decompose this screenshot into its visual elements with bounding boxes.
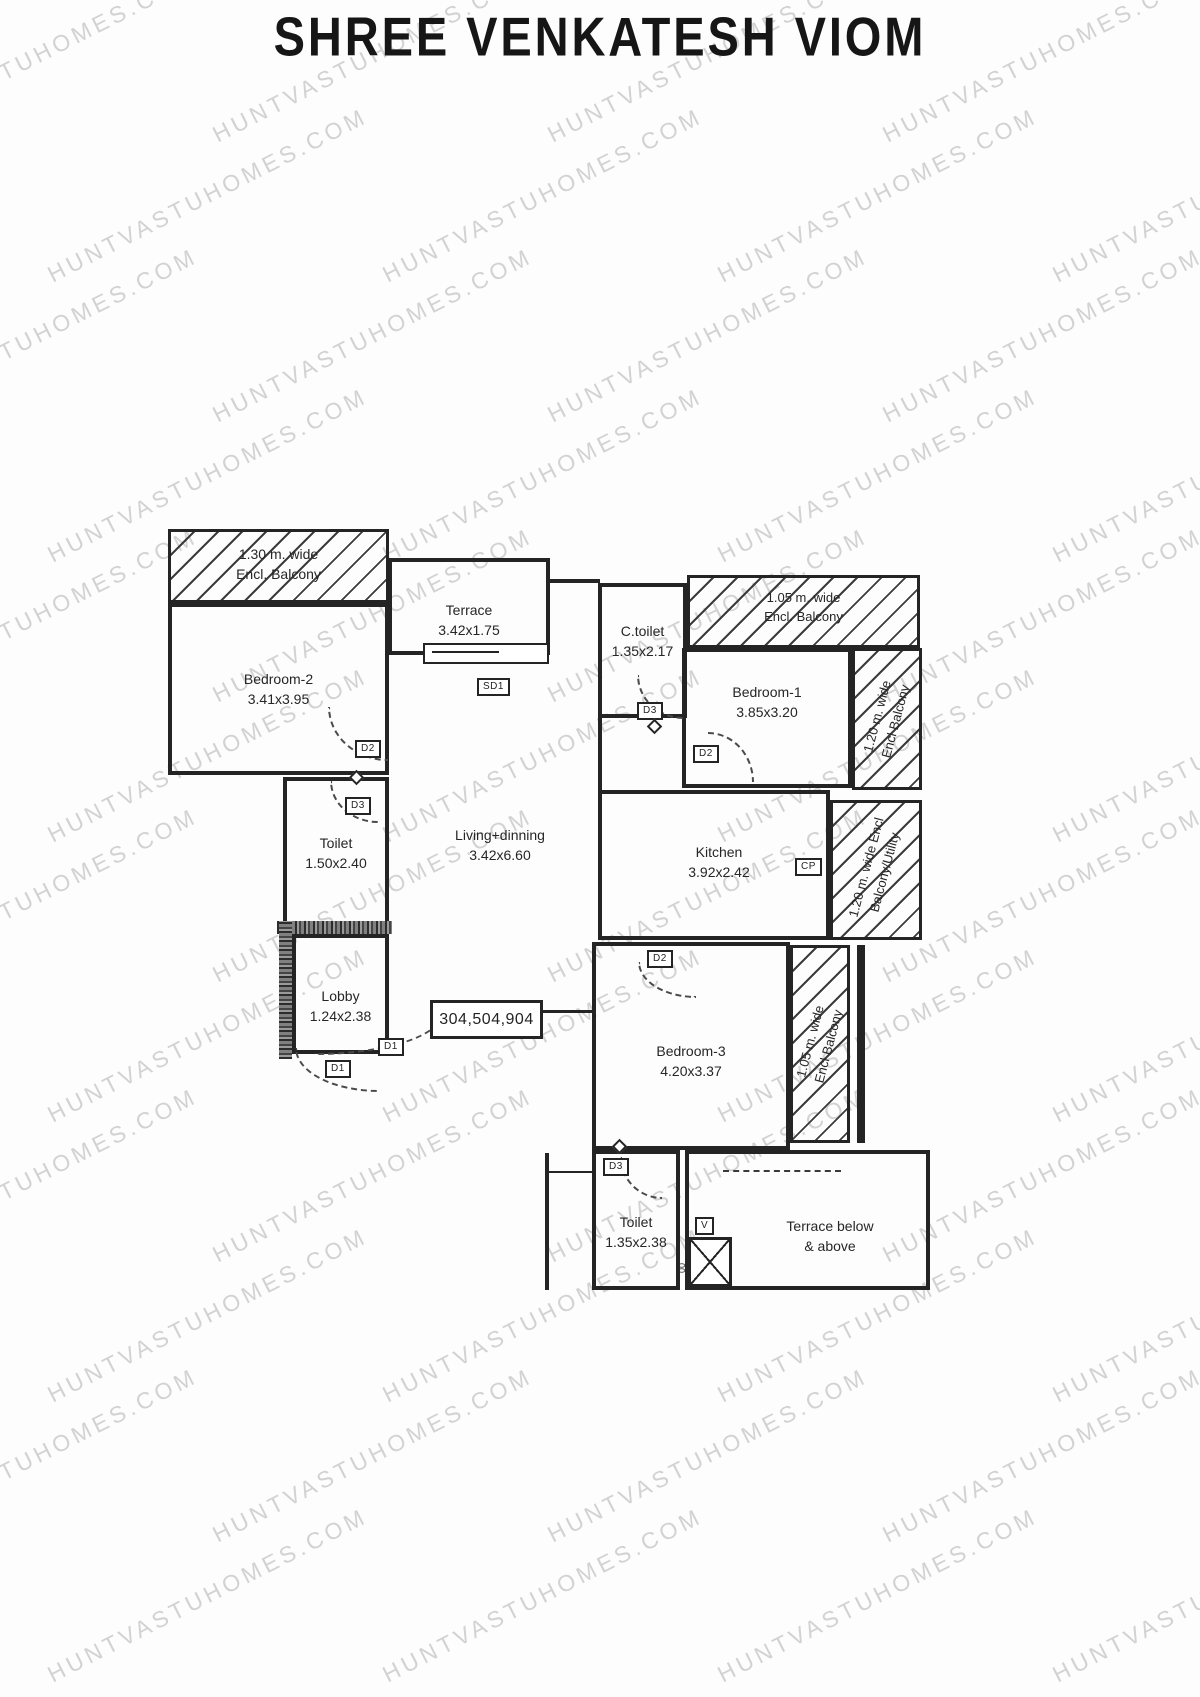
duct-label: 00: [677, 1263, 687, 1273]
door-tag-d3: D3: [637, 702, 663, 720]
toilet-left-label: Toilet 1.50x2.40: [287, 833, 385, 874]
living-name: Living+dinning: [455, 827, 545, 843]
kitchen-dim: 3.92x2.42: [688, 864, 750, 880]
balcony-right-label: 1.20 m. wide Encl Balcony: [859, 678, 915, 760]
watermark-text: HUNTVASTUHOMES.COM: [713, 1503, 1042, 1688]
terrace-dashed-line: [723, 1170, 841, 1172]
duct-shaft: [688, 1237, 732, 1287]
balcony-bedroom-3: 1.05 m. wide Encl Balcony: [790, 945, 850, 1143]
toilet-bottom-dim: 1.35x2.38: [605, 1234, 667, 1250]
balcony-top-left: 1.30 m. wide Encl. Balcony: [168, 529, 389, 603]
terrace-below-line2: & above: [804, 1238, 855, 1254]
watermark-text: HUNTVASTUHOMES.COM: [208, 1363, 537, 1548]
bedroom-2-label: Bedroom-2 3.41x3.95: [172, 669, 385, 710]
door-tag-d1: D1: [378, 1038, 404, 1056]
wall-segment: [545, 1171, 592, 1173]
watermark-text: HUNTVASTUHOMES.COM: [0, 1363, 202, 1548]
bedroom-1-name: Bedroom-1: [732, 684, 801, 700]
bedroom-3-label: Bedroom-3 4.20x3.37: [596, 1041, 786, 1082]
watermark-text: HUNTVASTUHOMES.COM: [208, 243, 537, 428]
balcony-top-right-label: 1.05 m. wide Encl. Balcony: [690, 589, 917, 627]
watermark-text: HUNTVASTUHOMES.COM: [0, 243, 202, 428]
watermark-text: HUNTVASTUHOMES.COM: [43, 103, 372, 288]
balcony-top-right-line1: 1.05 m. wide: [767, 590, 841, 605]
door-tag-d1: D1: [325, 1060, 351, 1078]
page-title: SHREE VENKATESH VIOM: [24, 6, 1176, 69]
living-label: Living+dinning 3.42x6.60: [405, 825, 595, 866]
door-tag-d2: D2: [355, 740, 381, 758]
c-toilet-dim: 1.35x2.17: [612, 643, 674, 659]
kitchen-label: Kitchen 3.92x2.42: [642, 842, 796, 883]
c-toilet-name: C.toilet: [621, 623, 665, 639]
c-toilet-label: C.toilet 1.35x2.17: [602, 621, 683, 662]
watermark-text: HUNTVASTUHOMES.COM: [713, 103, 1042, 288]
balcony-top-left-line1: 1.30 m. wide: [239, 546, 318, 562]
terrace-dim: 3.42x1.75: [438, 622, 500, 638]
unit-numbers: 304,504,904: [439, 1011, 533, 1029]
watermark-text: HUNTVASTUHOMES.COM: [543, 243, 872, 428]
kitchen-name: Kitchen: [696, 844, 743, 860]
watermark-text: HUNTVASTUHOMES.COM: [378, 103, 707, 288]
wall-segment: [545, 1153, 549, 1290]
lobby-name: Lobby: [321, 988, 359, 1004]
terrace: Terrace 3.42x1.75: [388, 558, 550, 655]
watermark-text: HUNTVASTUHOMES.COM: [543, 1363, 872, 1548]
bedroom-2-dim: 3.41x3.95: [248, 691, 310, 707]
door-tag-d3: D3: [603, 1158, 629, 1176]
floor-plan-page: { "title": "SHREE VENKATESH VIOM", "wate…: [0, 0, 1200, 1697]
balcony-top-right: 1.05 m. wide Encl. Balcony: [687, 575, 920, 648]
terrace-name: Terrace: [446, 602, 493, 618]
unit-numbers-box: 304,504,904: [430, 1000, 543, 1039]
toilet-bottom-label: Toilet 1.35x2.38: [596, 1212, 676, 1253]
door-tag-d2: D2: [647, 950, 673, 968]
door-tag-sd1: SD1: [477, 678, 510, 696]
balcony-right: 1.20 m. wide Encl Balcony: [852, 648, 922, 790]
watermark-text: HUNTVASTUHOMES.COM: [43, 1503, 372, 1688]
balcony-utility-label: 1.20 m. wide Encl Balcony/Utility: [845, 816, 908, 925]
bedroom-1-label: Bedroom-1 3.85x3.20: [686, 682, 848, 723]
watermark-text: HUNTVASTUHOMES.COM: [378, 1503, 707, 1688]
door-swing-marker: [647, 719, 663, 735]
terrace-label: Terrace 3.42x1.75: [392, 600, 546, 641]
bedroom-2-name: Bedroom-2: [244, 671, 313, 687]
toilet-left-name: Toilet: [320, 835, 353, 851]
floor-plan: 1.30 m. wide Encl. Balcony Bedroom-2 3.4…: [165, 525, 935, 1295]
bedroom-3-dim: 4.20x3.37: [660, 1063, 722, 1079]
balcony-top-left-label: 1.30 m. wide Encl. Balcony: [171, 544, 386, 585]
balcony-utility: 1.20 m. wide Encl Balcony/Utility: [830, 800, 922, 940]
toilet-left-dim: 1.50x2.40: [305, 855, 367, 871]
wall-segment: [550, 579, 600, 583]
door-tag-cp: CP: [795, 858, 822, 876]
terrace-below-label: Terrace below & above: [744, 1216, 916, 1257]
terrace-sliding-door: [423, 643, 549, 664]
door-tag-v: V: [695, 1217, 714, 1235]
door-tag-d2: D2: [693, 745, 719, 763]
bedroom-3-name: Bedroom-3: [656, 1043, 725, 1059]
wall-segment: [857, 945, 865, 1143]
balcony-top-left-line2: Encl. Balcony: [236, 566, 321, 582]
terrace-below-line1: Terrace below: [786, 1218, 873, 1234]
bedroom-1-dim: 3.85x3.20: [736, 704, 798, 720]
watermark-text: HUNTVASTUHOMES.COM: [1048, 1503, 1200, 1688]
door-tag-d3: D3: [345, 797, 371, 815]
wall-segment: [598, 715, 602, 790]
balcony-top-right-line2: Encl. Balcony: [764, 609, 843, 624]
toilet-bottom-name: Toilet: [620, 1214, 653, 1230]
wall-speckled: [277, 921, 392, 934]
living-dim: 3.42x6.60: [469, 847, 531, 863]
balcony-bedroom-3-label: 1.05 m. wide Encl Balcony: [792, 1003, 848, 1085]
wall-speckled: [279, 921, 292, 1059]
